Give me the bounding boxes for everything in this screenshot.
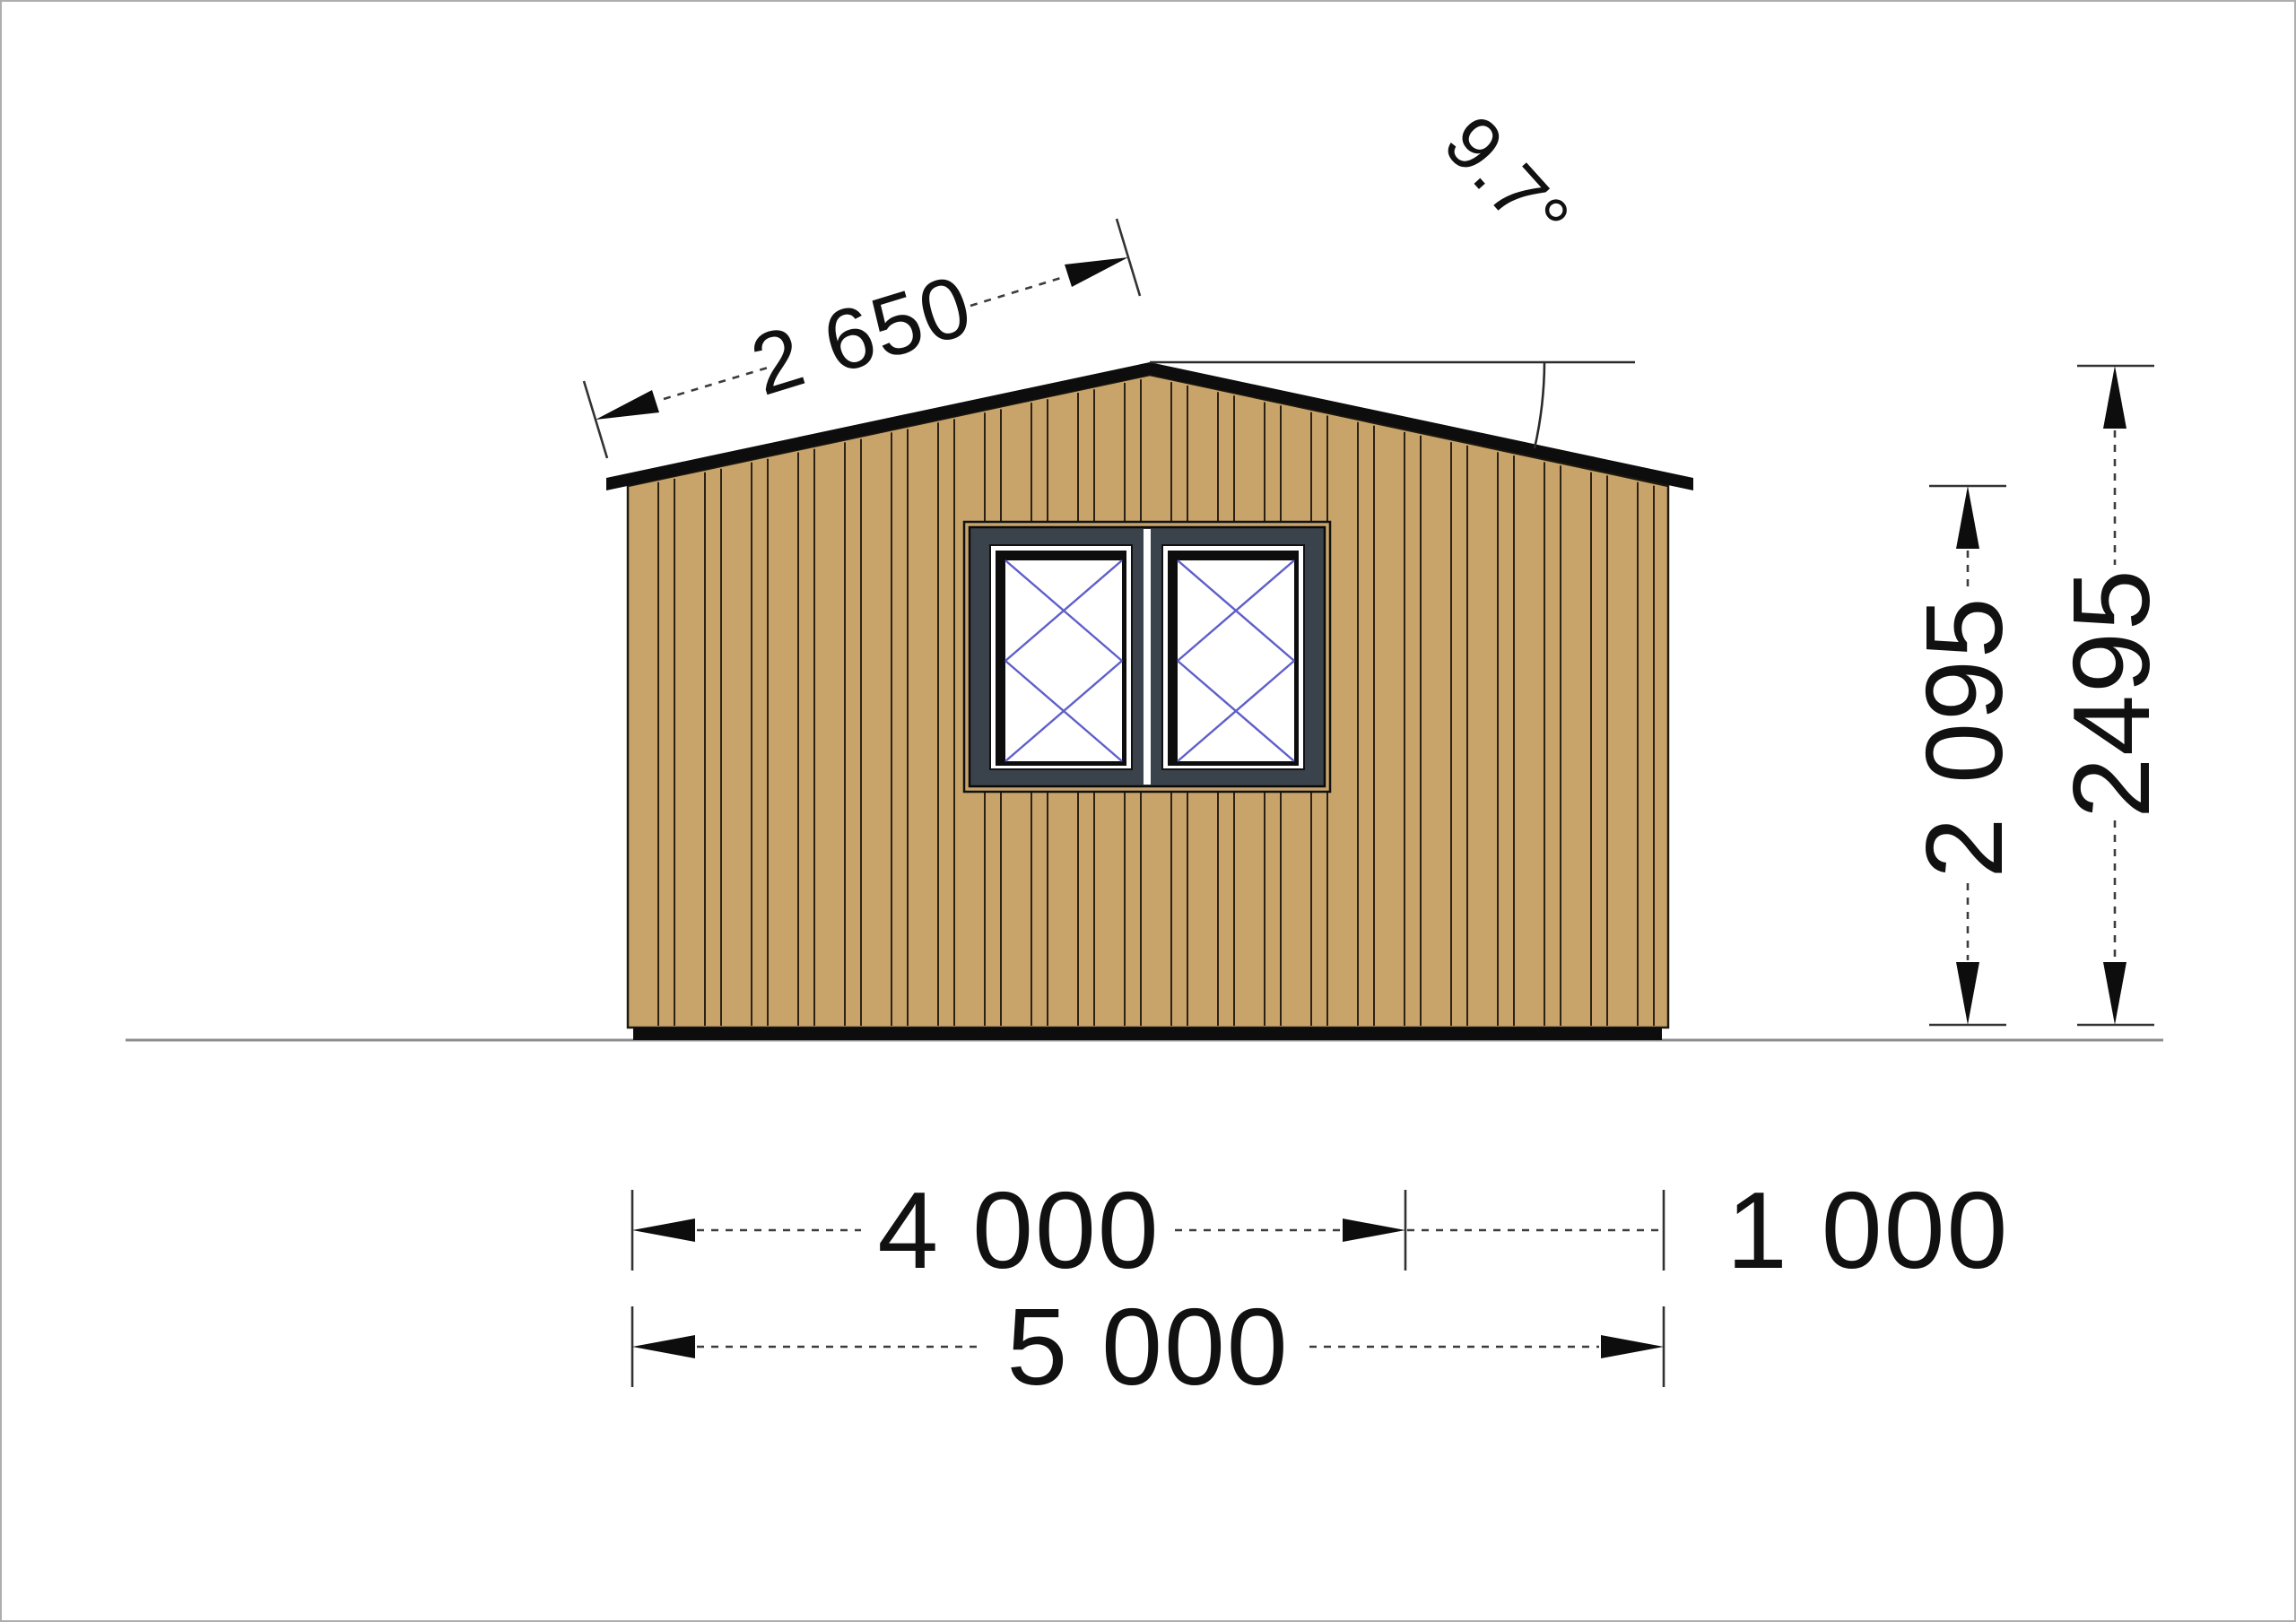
dimension-label-ridge-height: 2495 — [2050, 568, 2172, 818]
dimension-label-eave-wall-height: 2 095 — [1903, 595, 2025, 878]
dim-arrow — [2103, 366, 2126, 429]
dim-arrow — [1956, 486, 1979, 549]
dim-arrow — [632, 1335, 695, 1358]
dimension-label-house-width: 4 000 — [877, 1169, 1160, 1291]
dim-arrow — [1065, 257, 1128, 287]
dim-eave-wall-height: 2 095 — [1903, 486, 2025, 1025]
dimension-label-side-extension: 1 000 — [1726, 1169, 2009, 1291]
right-glass — [1178, 560, 1294, 761]
left-glass — [1005, 560, 1122, 761]
dim-total-width: 5 000 — [632, 1286, 1664, 1408]
angle-arc — [1535, 362, 1544, 448]
dim-house-width: 4 000 1 000 — [632, 1169, 2009, 1291]
dim-arrow — [2103, 962, 2126, 1025]
dim-arrow — [1601, 1335, 1664, 1358]
dim-ridge-height: 2495 — [2050, 366, 2172, 1025]
window-right-sash — [1162, 545, 1304, 769]
dimension-label-roof-slope: 2 650 — [741, 256, 984, 413]
elevation-page: 2 650 9.7° 2 095 2495 4 000 1 — [0, 0, 2296, 1622]
elevation-drawing: 2 650 9.7° 2 095 2495 4 000 1 — [0, 0, 2296, 1622]
dimension-label-roof-angle: 9.7° — [1427, 100, 1586, 263]
dim-arrow — [632, 1219, 695, 1242]
plinth — [633, 1028, 1662, 1040]
dim-arrow — [596, 390, 659, 420]
dimension-label-total-width: 5 000 — [1006, 1286, 1289, 1408]
window-mullion — [1144, 529, 1151, 785]
dim-arrow — [1343, 1219, 1405, 1242]
dim-arrow — [1956, 962, 1979, 1025]
window-left-sash — [990, 545, 1132, 769]
window — [964, 522, 1330, 792]
